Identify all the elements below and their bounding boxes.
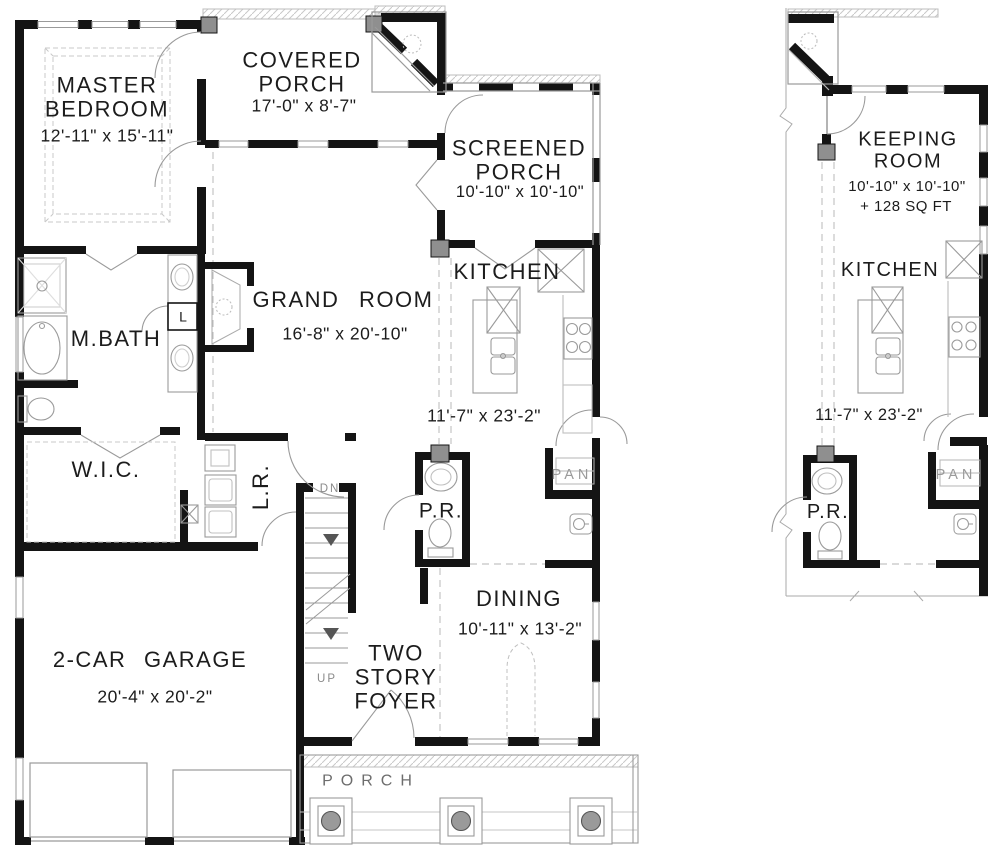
covered-porch-dims: 17'-0" x 8'-7" xyxy=(252,97,357,116)
grand-room-label: GRAND ROOM xyxy=(253,288,434,312)
linen-closet-label: L xyxy=(179,309,187,324)
stairs-up-label: UP xyxy=(317,673,337,685)
porch-fireplace-hearth xyxy=(403,35,421,53)
laundry-room-label: L.R. xyxy=(249,464,273,510)
alt-powder-room-label: P.R. xyxy=(807,502,849,524)
keeping-room-area: + 128 SQ FT xyxy=(860,199,952,215)
fireplace-diagonals xyxy=(379,27,436,84)
keeping-room-label: KEEPING ROOM xyxy=(838,129,978,172)
screened-porch-label: SCREENED PORCH xyxy=(424,136,614,184)
kitchen-label: KITCHEN xyxy=(453,260,560,284)
stairs-dn-label: DN xyxy=(320,483,341,495)
pantry-label: PAN xyxy=(552,468,593,484)
porch-columns xyxy=(310,798,612,844)
grand-room-fireplace xyxy=(212,270,240,344)
alt-fireplace-hearth xyxy=(801,33,817,49)
master-bath-label: M.BATH xyxy=(71,327,161,351)
alt-pantry-label: PAN xyxy=(936,468,977,484)
covered-porch-label: COVERED PORCH xyxy=(217,48,387,96)
powder-room-label: P.R. xyxy=(419,501,463,524)
wic-label: W.I.C. xyxy=(72,458,141,482)
front-porch-label: PORCH xyxy=(322,772,420,789)
foyer-label: TWO STORY FOYER xyxy=(346,641,446,712)
master-bedroom-label: MASTER BEDROOM xyxy=(32,73,182,121)
alt-kitchen-dims: 11'-7" x 23'-2" xyxy=(815,407,923,425)
grand-room-dims: 16'-8" x 20'-10" xyxy=(282,325,407,344)
screened-porch-dims: 10'-10" x 10'-10" xyxy=(456,184,584,202)
keeping-room-dims: 10'-10" x 10'-10" xyxy=(848,179,965,195)
kitchen-dims: 11'-7" x 23'-2" xyxy=(427,407,541,426)
alternate-plan xyxy=(772,8,988,601)
garage-dims: 20'-4" x 20'-2" xyxy=(97,688,212,707)
garage-label: 2-CAR GARAGE xyxy=(53,648,247,672)
master-bedroom-dims: 12'-11" x 15'-11" xyxy=(41,127,174,146)
dining-dims: 10'-11" x 13'-2" xyxy=(458,620,582,639)
laundry-fixtures xyxy=(205,445,236,537)
alt-fireplace-diagonal xyxy=(792,46,826,79)
alt-kitchen-label: KITCHEN xyxy=(841,260,939,282)
stairs xyxy=(305,498,350,663)
dining-label: DINING xyxy=(476,587,562,611)
bath-fixtures xyxy=(18,255,198,523)
floor-plan-page: MASTER BEDROOM 12'-11" x 15'-11" COVERED… xyxy=(0,0,1000,857)
dining-hutch-dashes xyxy=(507,643,535,736)
